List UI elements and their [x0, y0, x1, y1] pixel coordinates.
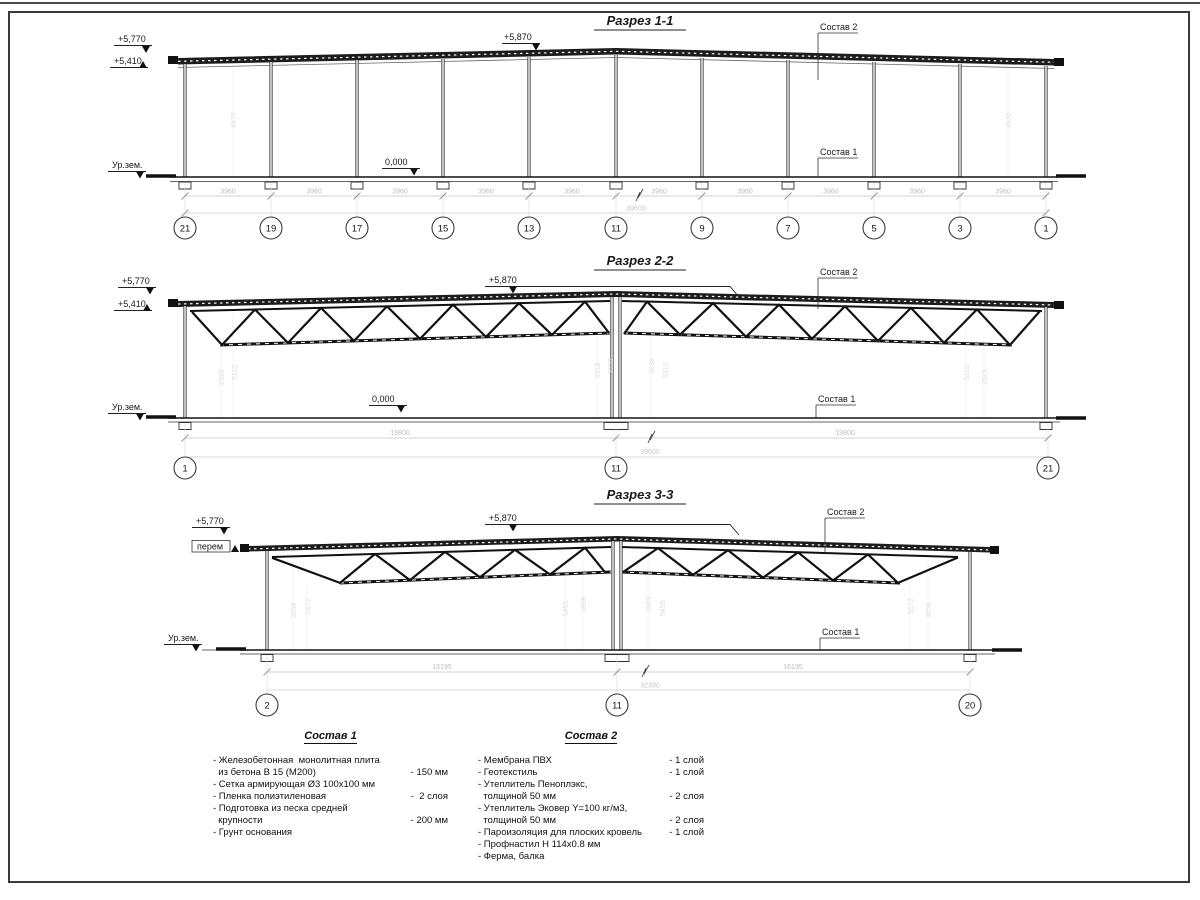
layer1-callout: Состав 1 [818, 394, 855, 404]
legend-item: - Железобетонная монолитная плита из бет… [213, 755, 448, 779]
span-dim: 19800 [390, 430, 410, 437]
grid-bubble-label: 19 [266, 224, 277, 235]
height-dim: 2529 [982, 369, 989, 385]
height-dim: 5315 [595, 362, 602, 378]
bay-dim: 3960 [995, 189, 1011, 196]
layer2-callout: Состав 2 [820, 22, 857, 32]
section-3-3: Разрез 3-3 [164, 487, 1022, 716]
height-dim: 2529 [219, 369, 226, 385]
elevation-label: +5,770 [118, 34, 146, 44]
elevation-arrow-icon [509, 525, 517, 532]
legend-item: - Ферма, балка [478, 851, 704, 863]
legend-item: - Геотекстиль- 1 слой [478, 767, 704, 779]
drawing-sheet: Разрез 1-1 +5,770 +5,410 [0, 0, 1200, 900]
legend-item: - Утеплитель Пеноплэкс, толщиной 50 мм- … [478, 779, 704, 803]
legend-item: - Подготовка из песка средней крупности-… [213, 803, 448, 827]
bay-dim: 3960 [823, 189, 839, 196]
truss-right [621, 547, 958, 583]
legend-1-title: Состав 1 [213, 730, 448, 742]
grid-bubble-label: 13 [524, 224, 535, 235]
height-dim: 5455 [660, 600, 667, 616]
total-dim: 32390 [640, 683, 660, 690]
height-dim: 5315 [663, 362, 670, 378]
legend-item: - Утеплитель Эковер Y=100 кг/м3, толщино… [478, 803, 704, 827]
layer2-callout: Состав 2 [820, 267, 857, 277]
legend-item: - Грунт основания [213, 827, 448, 839]
section-2-2: Разрез 2-2 [108, 253, 1086, 479]
grid-bubble-label: 11 [612, 701, 622, 712]
elevation-arrow-icon [397, 406, 405, 413]
legend-item: - Профнастил Н 114x0.8 мм [478, 839, 704, 851]
span-dim: 19800 [835, 430, 855, 437]
grid-bubble-label: 21 [1043, 464, 1054, 475]
height-dim: 4930 [1006, 112, 1013, 128]
elevation-arrow-icon [192, 645, 200, 652]
bay-dim: 3960 [478, 189, 494, 196]
bay-dim: 3960 [909, 189, 925, 196]
bay-dim: 3960 [737, 189, 753, 196]
height-dim: 5110 [232, 365, 239, 380]
section-1-1-title: Разрез 1-1 [607, 13, 674, 28]
footings [179, 423, 1052, 430]
total-dim: 39600 [626, 206, 646, 213]
total-dim: 39600 [640, 449, 660, 456]
legend-2-title: Состав 2 [478, 730, 704, 742]
section-3-3-title: Разрез 3-3 [607, 487, 675, 502]
grid-bubble-label: 2 [264, 701, 269, 712]
bay-dim: 3960 [392, 189, 408, 196]
zero-level-label: 0,000 [372, 394, 395, 404]
legend-sostav-1: Состав 1 - Железобетонная монолитная пли… [213, 730, 448, 839]
legend-item: - Мембрана ПВХ- 1 слой [478, 755, 704, 767]
legend-item: - Пароизоляция для плоских кровель- 1 сл… [478, 827, 704, 839]
elevation-arrow-icon [231, 545, 239, 552]
roof-end-plate-left [240, 544, 249, 552]
height-dim: 3059 [926, 602, 933, 618]
elevation-arrow-icon [136, 414, 144, 421]
legend-sostav-2: Состав 2 - Мембрана ПВХ- 1 слой - Геотек… [478, 730, 704, 863]
roof-end-plate-right [1054, 301, 1064, 309]
height-dim: 3909 [646, 596, 653, 612]
roof-end-plate-left [168, 299, 178, 307]
truss-left [190, 301, 610, 345]
peak-elevation-label: +5,870 [504, 32, 532, 42]
height-dim: 5172 [305, 598, 312, 614]
elevation-arrow-icon [220, 528, 228, 535]
ground-level-label: Ур.зем. [112, 160, 143, 170]
grid-bubble-label: 1 [182, 464, 187, 475]
grid-bubble-label: 20 [965, 701, 976, 712]
roof-end-plate-right [990, 546, 999, 554]
truss-left [272, 547, 611, 583]
ground-level-label: Ур.зем. [168, 633, 199, 643]
height-dim: 3909 [581, 596, 588, 612]
height-dim: 5455 [563, 600, 570, 616]
layer1-callout: Состав 1 [820, 147, 857, 157]
elevation-arrow-icon [146, 288, 154, 295]
layer1-callout: Состав 1 [822, 627, 859, 637]
elevation-arrow-icon [136, 172, 144, 179]
elevation-label: +5,770 [196, 516, 224, 526]
bay-dim: 3960 [564, 189, 580, 196]
footings [261, 655, 976, 662]
grid-bubble-label: 5 [871, 224, 876, 235]
layer2-callout: Состав 2 [827, 507, 864, 517]
legend-item: - Пленка полиэтиленовая- 2 слоя [213, 791, 448, 803]
elevation-arrow-icon [142, 46, 150, 53]
height-dim: 3638 [649, 358, 656, 374]
elevation-arrow-icon [532, 44, 540, 51]
roof-end-plate-right [1054, 58, 1064, 66]
grid-bubble-label: 3 [957, 224, 962, 235]
break-symbol-icon [642, 665, 649, 677]
elevation-label: перем [197, 542, 223, 552]
grid-bubble-label: 17 [352, 224, 363, 235]
elevation-arrow-icon [410, 169, 418, 176]
grid-bubble-label: 11 [611, 464, 621, 475]
roof-end-plate-left [168, 56, 178, 64]
grid-bubble-label: 15 [438, 224, 449, 235]
section-1-1: Разрез 1-1 +5,770 +5,410 [108, 13, 1086, 239]
bay-dim: 3960 [220, 189, 236, 196]
height-dim: 5110 [964, 365, 971, 380]
grid-bubble-label: 11 [611, 224, 621, 235]
ground-level-label: Ур.зем. [112, 402, 143, 412]
span-dim: 16195 [432, 664, 452, 671]
elevation-label: +5,410 [118, 299, 146, 309]
elevation-label: +5,770 [122, 276, 150, 286]
height-dim: 3059 [291, 602, 298, 618]
grid-bubble-label: 1 [1043, 224, 1048, 235]
grid-bubble-label: 7 [785, 224, 790, 235]
legend-item: - Сетка армирующая Ø3 100x100 мм [213, 779, 448, 791]
section-2-2-title: Разрез 2-2 [607, 253, 675, 268]
span-dim: 16195 [783, 664, 803, 671]
bay-dim: 3960 [306, 189, 322, 196]
elevation-label: +5,410 [114, 56, 142, 66]
grid-bubble-label: 21 [180, 224, 191, 235]
break-symbol-icon [636, 189, 643, 201]
elevation-arrow-icon [509, 287, 517, 294]
peak-elevation-label: +5,870 [489, 275, 517, 285]
height-dim: 5172 [908, 598, 915, 614]
break-symbol-icon [648, 431, 655, 443]
zero-level-label: 0,000 [385, 157, 408, 167]
height-dim: 3638 [608, 358, 615, 374]
grid-bubble-label: 9 [699, 224, 704, 235]
height-dim: 4970 [231, 112, 238, 128]
bay-dim: 3960 [651, 189, 667, 196]
truss-right [622, 301, 1042, 345]
peak-elevation-label: +5,870 [489, 513, 517, 523]
